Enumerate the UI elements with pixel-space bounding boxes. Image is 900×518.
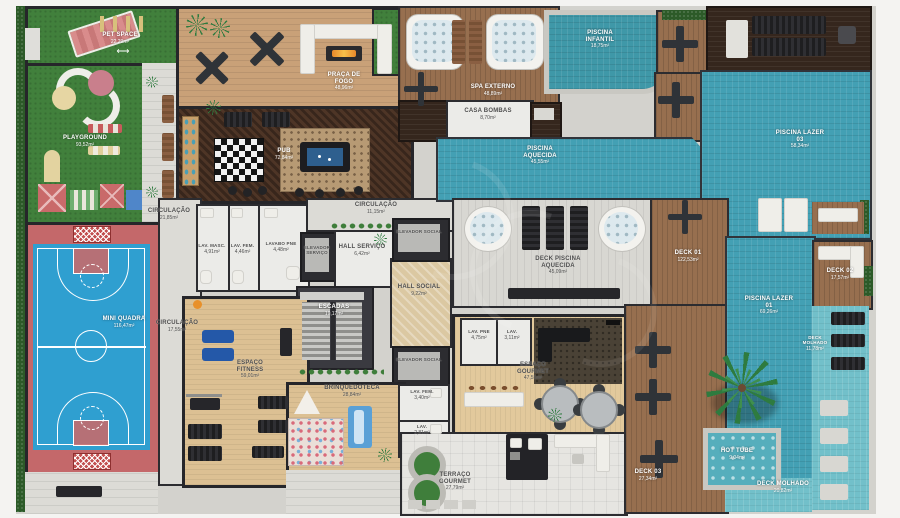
pub-armchairs bbox=[224, 112, 252, 127]
room-label-lav-2: LAV.2,81m² bbox=[400, 425, 444, 436]
billiard-ball bbox=[328, 158, 331, 161]
x-table bbox=[658, 82, 694, 118]
checkerboard-rug bbox=[214, 138, 264, 182]
pet-hurdle bbox=[139, 16, 143, 32]
gym-machine bbox=[258, 396, 288, 409]
lounger bbox=[752, 16, 826, 34]
stool bbox=[228, 186, 237, 195]
plant bbox=[378, 448, 392, 462]
zone-walkway-bottom bbox=[286, 470, 400, 514]
playground-block-pink bbox=[100, 184, 124, 208]
playground-bench bbox=[88, 124, 122, 133]
room-label-lav-masc: LAV. MASC.4,91m² bbox=[197, 244, 227, 255]
playground-tower bbox=[44, 150, 60, 182]
toilet bbox=[232, 270, 244, 284]
zone-lav-pne bbox=[460, 318, 500, 366]
plant bbox=[206, 100, 221, 115]
planter-row bbox=[298, 368, 384, 376]
room-label-deck-03: DECK 0327,34m² bbox=[622, 469, 674, 482]
court-center-circle bbox=[75, 330, 107, 362]
bench bbox=[56, 486, 102, 497]
room-label-pet-space: PET SPACE22,29m² bbox=[92, 32, 148, 45]
deck-mat bbox=[820, 428, 848, 444]
room-label-praca-de-fogo: PRAÇA DE FOGO48,96m² bbox=[318, 72, 370, 92]
toilet bbox=[286, 266, 300, 280]
playground-mound-cream bbox=[52, 86, 76, 110]
lounger bbox=[831, 357, 865, 370]
bush bbox=[146, 76, 158, 88]
room-label-deck-molhado-bottom: DECK MOLHADO20,82m² bbox=[756, 481, 810, 494]
zone-piscina-infantil bbox=[544, 10, 672, 94]
room-label-piscina-lazer-03: PISCINA LAZER 0358,34m² bbox=[772, 130, 828, 150]
lounger bbox=[752, 38, 826, 56]
lounger bbox=[818, 208, 858, 222]
room-label-casa-bombas: CASA BOMBAS8,70m² bbox=[448, 108, 528, 121]
room-label-circulacao-top: CIRCULAÇÃO11,15m² bbox=[348, 202, 404, 215]
sink bbox=[264, 208, 278, 218]
spa-tub-water bbox=[604, 212, 638, 244]
x-table bbox=[662, 26, 698, 62]
room-label-hall-social: HALL SOCIAL9,22m² bbox=[394, 284, 444, 297]
sink bbox=[510, 438, 522, 448]
coffee-table bbox=[572, 454, 584, 464]
playground-block-blue bbox=[126, 190, 142, 210]
room-label-espaco-fitness: ESPAÇO FITNESS59,01m² bbox=[226, 360, 274, 380]
teepee bbox=[294, 390, 320, 414]
room-label-deck-molhado-right: DECK MOLHADO11,78m² bbox=[800, 336, 830, 352]
room-label-elevador-social-bottom: ELEVADOR SOCIAL bbox=[393, 358, 445, 363]
bench bbox=[162, 133, 174, 161]
toilet bbox=[200, 270, 212, 284]
room-label-espaco-gourmet: ESPAÇO GOURMET47,55m² bbox=[507, 362, 559, 382]
stool bbox=[336, 188, 345, 197]
stool bbox=[295, 188, 304, 197]
billiard-ball bbox=[318, 155, 321, 158]
court-net-top bbox=[73, 226, 111, 243]
sink bbox=[200, 208, 214, 218]
paver bbox=[444, 500, 458, 509]
room-label-terraco-gourmet: TERRAÇO GOURMET27,79m² bbox=[428, 472, 482, 492]
stool bbox=[258, 186, 267, 195]
lounger bbox=[831, 334, 865, 347]
plant bbox=[548, 408, 562, 422]
billiard-felt bbox=[307, 148, 343, 166]
treadmill bbox=[188, 424, 222, 439]
room-label-lav-fem-2: LAV. FEM.3,40m² bbox=[400, 390, 444, 401]
sink bbox=[231, 208, 243, 218]
spa-tub-water bbox=[492, 20, 536, 62]
fire-sofa bbox=[377, 24, 392, 74]
room-label-deck-01: DECK 01122,53m² bbox=[662, 250, 714, 263]
room-label-elevador-social-top: ELEVADOR SOCIAL bbox=[393, 230, 445, 235]
room-label-spa-externo: SPA EXTERNO48,89m² bbox=[464, 84, 522, 97]
room-label-circulacao-pub: CIRCULAÇÃO21,85m² bbox=[140, 208, 198, 221]
room-label-playground: PLAYGROUND93,52m² bbox=[57, 135, 113, 148]
hedge-top bbox=[662, 10, 706, 20]
gym-mat bbox=[202, 330, 234, 343]
pet-pad bbox=[25, 28, 40, 60]
court-net-bottom bbox=[73, 453, 111, 470]
bench bbox=[162, 95, 174, 123]
toy-slide-lane bbox=[354, 410, 364, 444]
exercise-ball bbox=[193, 300, 202, 309]
room-label-circulacao-fitness: CIRCULAÇÃO17,55m² bbox=[148, 320, 206, 333]
pump-equipment bbox=[534, 108, 554, 120]
room-label-hot-tube: HOT TUBE9,04m² bbox=[712, 448, 762, 461]
room-label-lavabo-pne: LAVABO PNE4,48m² bbox=[259, 242, 303, 253]
lounger bbox=[469, 20, 482, 64]
room-label-mini-quadra: MINI QUADRA116,47m² bbox=[98, 316, 150, 329]
pub-armchairs bbox=[262, 112, 290, 127]
palm-plant bbox=[186, 14, 208, 36]
fire-sofa bbox=[300, 24, 315, 74]
barbell bbox=[186, 394, 222, 397]
fire-flame bbox=[332, 50, 356, 57]
x-table bbox=[635, 379, 671, 415]
stool bbox=[354, 186, 363, 195]
pet-arrow: ⟷ bbox=[98, 46, 148, 56]
pet-hurdle bbox=[126, 16, 130, 32]
room-label-pub: PUB72,84m² bbox=[264, 148, 304, 161]
room-label-lav-3: LAV.3,11m² bbox=[497, 330, 527, 341]
counter-top bbox=[528, 438, 542, 450]
deck-mat bbox=[820, 456, 848, 472]
pool-bench bbox=[784, 198, 808, 232]
pub-bar-counter bbox=[182, 116, 199, 186]
paver bbox=[408, 500, 422, 509]
stool bbox=[243, 188, 252, 197]
playground-mound-pink bbox=[88, 70, 114, 96]
palm-trunk bbox=[738, 384, 746, 392]
room-label-piscina-lazer-01: PISCINA LAZER 0169,26m² bbox=[744, 296, 794, 316]
outdoor-sofa bbox=[596, 434, 610, 472]
bench bbox=[162, 170, 174, 198]
paver bbox=[426, 500, 440, 509]
zone-deck-dark-left bbox=[398, 100, 450, 142]
playground-block-green bbox=[70, 190, 98, 210]
room-label-hall-servico: HALL SERVIÇO6,42m² bbox=[336, 244, 388, 257]
side-table bbox=[838, 26, 856, 44]
x-table bbox=[668, 200, 702, 234]
pet-hurdle bbox=[100, 16, 104, 32]
lounger bbox=[452, 20, 465, 64]
room-label-brinquedoteca: BRINQUEDOTECA28,84m² bbox=[322, 385, 382, 398]
x-table bbox=[404, 72, 438, 106]
deck-mat bbox=[820, 484, 848, 500]
room-label-lav-pne: LAV. PNE4,75m² bbox=[462, 330, 496, 341]
lounger bbox=[831, 312, 865, 325]
gym-machine bbox=[252, 446, 284, 458]
deck-mat bbox=[820, 400, 848, 416]
treadmill bbox=[188, 446, 222, 461]
weight-bench bbox=[190, 398, 220, 410]
playground-block-pink bbox=[38, 184, 66, 212]
stair-landing bbox=[300, 292, 364, 300]
room-label-elevador-servico: ELEVADOR SERVIÇO bbox=[301, 246, 333, 256]
ball-pit bbox=[288, 418, 344, 466]
hedge-left bbox=[16, 6, 25, 512]
squat-rack bbox=[280, 328, 292, 356]
room-label-deck-02: DECK 0217,57m² bbox=[814, 268, 866, 281]
room-label-deck-piscina-aquecida: DECK PISCINA AQUECIDA45,09m² bbox=[526, 256, 590, 276]
room-label-piscina-aquecida: PISCINA AQUECIDA45,55m² bbox=[512, 146, 568, 166]
spa-tub-water bbox=[412, 20, 456, 62]
pet-hurdle bbox=[113, 16, 117, 32]
room-label-lav-fem: LAV. FEM.4,46m² bbox=[228, 244, 257, 255]
dining-table bbox=[580, 391, 618, 429]
palm-plant bbox=[210, 18, 230, 38]
counter-stools bbox=[466, 384, 520, 392]
kitchen-counter bbox=[464, 392, 524, 407]
room-label-piscina-infantil: PISCINA INFANTIL18,75m² bbox=[574, 30, 626, 50]
room-label-escadas: ESCADAS19,17m² bbox=[306, 304, 362, 317]
deck-mat bbox=[726, 20, 748, 58]
pool-bench bbox=[758, 198, 782, 232]
floor-plan: ⟷ bbox=[0, 0, 900, 518]
gym-machine bbox=[258, 420, 288, 433]
stove bbox=[510, 452, 520, 460]
stool bbox=[315, 189, 324, 198]
bush bbox=[146, 186, 158, 198]
planter-row bbox=[330, 222, 392, 230]
paver bbox=[462, 500, 476, 509]
